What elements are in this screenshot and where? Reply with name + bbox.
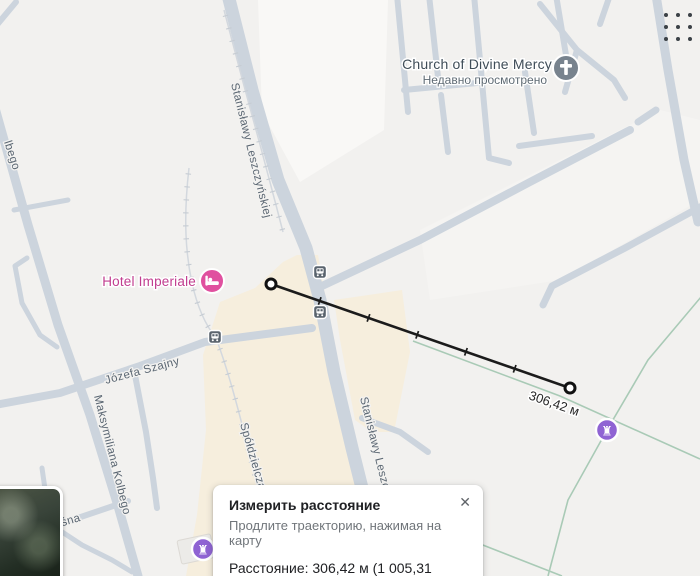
dialog-hint: Продлите траекторию, нажимая на карту <box>229 518 467 548</box>
hotel-icon[interactable] <box>200 269 224 293</box>
dialog-title: Измерить расстояние <box>229 497 467 513</box>
apps-grid-icon[interactable] <box>660 9 696 45</box>
measure-start-point[interactable] <box>266 279 276 289</box>
church-status-label: Недавно просмотрено <box>423 73 548 87</box>
street-view-thumbnail[interactable] <box>0 486 63 576</box>
measure-end-point[interactable] <box>565 383 575 393</box>
landmark-icon[interactable]: ♜ <box>596 419 618 441</box>
church-icon[interactable] <box>553 55 579 81</box>
svg-text:♜: ♜ <box>601 424 613 439</box>
transit-stop-icon[interactable] <box>209 331 222 344</box>
transit-stop-icon[interactable] <box>314 266 327 279</box>
hotel-label: Hotel Imperiale <box>102 274 196 289</box>
measure-distance-dialog: Измерить расстояние Продлите траекторию,… <box>213 485 483 576</box>
landmark-icon[interactable]: ♜ <box>192 538 214 560</box>
transit-stop-icon[interactable] <box>314 306 327 319</box>
svg-text:♜: ♜ <box>197 543 209 558</box>
dialog-distance-value: Расстояние: 306,42 м (1 005,31 фут.) <box>229 560 467 576</box>
google-maps-window: Stanisławy Leszczyńskiej Stanisławy Lesz… <box>0 0 700 576</box>
church-label: Church of Divine Mercy <box>402 56 552 72</box>
close-icon[interactable]: ✕ <box>455 491 475 513</box>
